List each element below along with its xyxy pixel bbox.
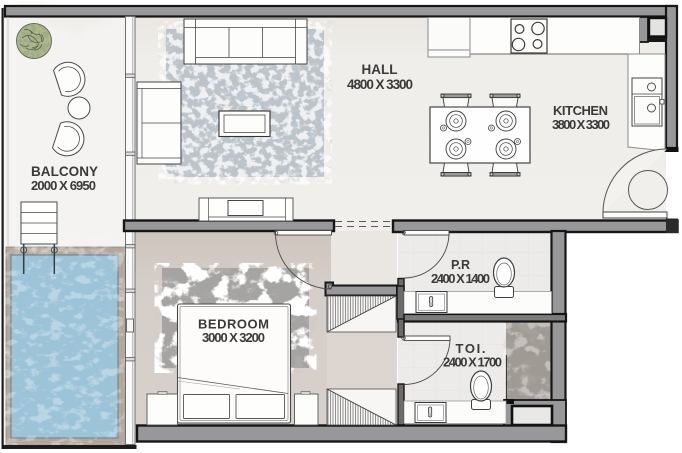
svg-text:KITCHEN: KITCHEN xyxy=(553,103,608,118)
svg-text:2000 X 6950: 2000 X 6950 xyxy=(31,178,96,193)
svg-text:P.R: P.R xyxy=(451,258,470,272)
svg-text:3000 X 3200: 3000 X 3200 xyxy=(202,330,265,345)
svg-text:2400 X 1700: 2400 X 1700 xyxy=(443,355,502,370)
svg-text:4800 X 3300: 4800 X 3300 xyxy=(347,77,413,92)
svg-text:BALCONY: BALCONY xyxy=(31,164,98,179)
svg-text:2400 X 1400: 2400 X 1400 xyxy=(431,271,490,286)
svg-text:HALL: HALL xyxy=(362,62,398,77)
svg-text:3800 X 3300: 3800 X 3300 xyxy=(552,117,610,132)
